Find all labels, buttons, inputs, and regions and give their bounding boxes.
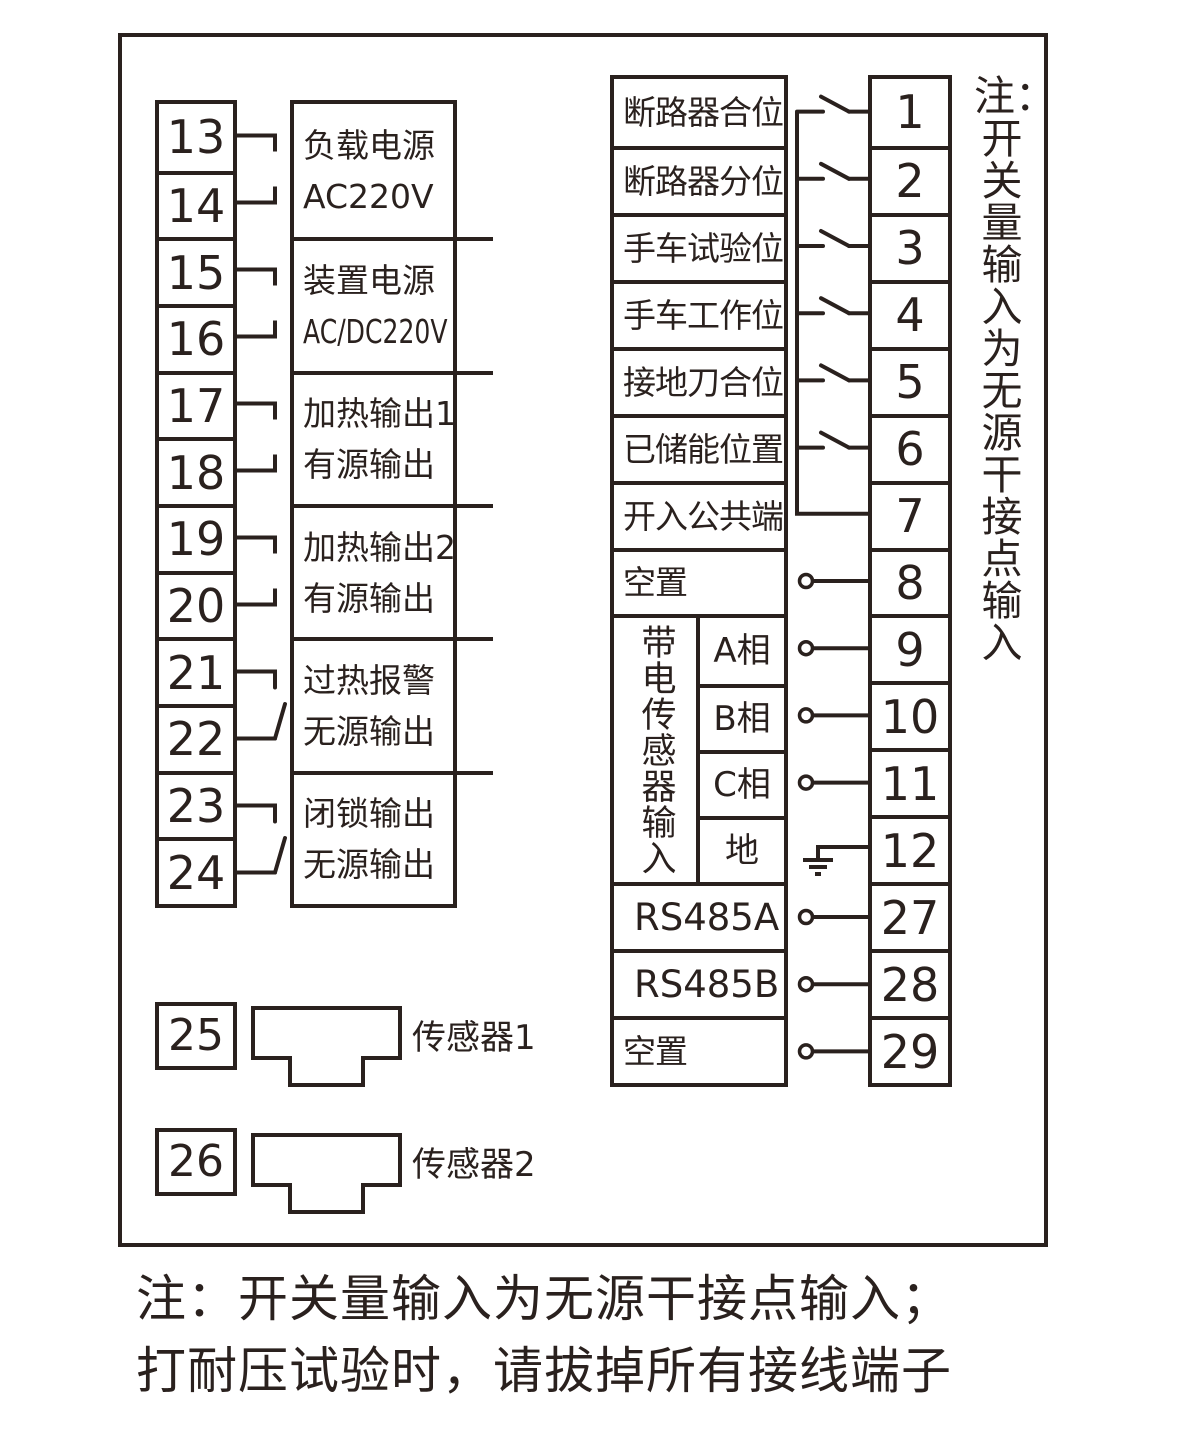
signal-breaker-open: 断路器分位 [614, 146, 784, 213]
left-terminal-22: 22 [159, 704, 233, 771]
sensor2-terminal-box: 26 [155, 1128, 237, 1196]
wiring-diagram-page: { "ink_color": "#2a211e", "background_co… [0, 0, 1180, 1432]
phase-channel-column: A相 B相 C相 地 [700, 618, 784, 882]
signal-spare-8: 空置 [614, 548, 784, 615]
output-group-label-line1: 加热输出1 [303, 397, 493, 430]
output-group-label-line2: 无源输出 [303, 848, 493, 881]
output-group-device-power: 装置电源 AC/DC220V [294, 237, 493, 370]
footer-note-line1: 注：开关量输入为无源干接点输入； [136, 1274, 952, 1324]
terminal-2: 2 [872, 146, 948, 213]
output-group-lockout: 闭锁输出 无源输出 [294, 771, 493, 904]
terminal-28: 28 [872, 949, 948, 1016]
output-group-heater-1: 加热输出1 有源输出 [294, 371, 493, 504]
output-group-label-line1: 过热报警 [303, 664, 493, 697]
channel-phase-a: A相 [700, 618, 784, 684]
terminal-12: 12 [872, 815, 948, 882]
terminal-8: 8 [872, 548, 948, 615]
output-group-label-line2: AC220V [303, 180, 493, 213]
signal-rs485b: RS485B [614, 949, 784, 1016]
sensor2-label: 传感器2 [412, 1148, 536, 1182]
signal-rs485a: RS485A [614, 882, 784, 949]
output-group-label-line2: 无源输出 [303, 715, 493, 748]
left-terminal-15: 15 [159, 237, 233, 304]
output-group-label-line1: 装置电源 [303, 264, 493, 297]
terminal-11: 11 [872, 748, 948, 815]
left-terminal-17: 17 [159, 371, 233, 438]
output-group-overheat-alarm: 过热报警 无源输出 [294, 637, 493, 770]
terminal-10: 10 [872, 681, 948, 748]
left-terminal-19: 19 [159, 504, 233, 571]
terminal-29: 29 [872, 1016, 948, 1083]
signal-trolley-work: 手车工作位 [614, 280, 784, 347]
output-group-load-power: 负载电源 AC220V [294, 104, 493, 237]
left-terminal-13: 13 [159, 104, 233, 171]
sensor1-terminal-box: 25 [155, 1002, 237, 1070]
terminal-9: 9 [872, 614, 948, 681]
channel-phase-c: C相 [700, 750, 784, 816]
live-sensor-input-group-title-cell: 带电传感器输入 [614, 618, 700, 882]
output-group-label-line1: 负载电源 [303, 129, 493, 162]
output-group-label-line2: 有源输出 [303, 448, 493, 481]
footer-note-line2: 打耐压试验时，请拔掉所有接线端子 [136, 1346, 952, 1396]
signal-input-common: 开入公共端 [614, 481, 784, 548]
channel-phase-b: B相 [700, 684, 784, 750]
terminal-1: 1 [872, 79, 948, 146]
output-group-label-line1: 闭锁输出 [303, 797, 493, 830]
signal-breaker-closed: 断路器合位 [614, 79, 784, 146]
terminal-7: 7 [872, 481, 948, 548]
live-sensor-input-group-title: 带电传感器输入 [638, 624, 673, 876]
output-group-label-line2: 有源输出 [303, 582, 493, 615]
left-terminal-24: 24 [159, 837, 233, 904]
terminal-4: 4 [872, 280, 948, 347]
output-group-label-line2: AC/DC220V [303, 315, 448, 348]
signal-earth-switch-closed: 接地刀合位 [614, 347, 784, 414]
left-output-label-column: 负载电源 AC220V 装置电源 AC/DC220V 加热输出1 有源输出 加热… [290, 100, 457, 908]
left-terminal-23: 23 [159, 771, 233, 838]
signal-trolley-test: 手车试验位 [614, 213, 784, 280]
terminal-6: 6 [872, 414, 948, 481]
terminal-27: 27 [872, 882, 948, 949]
left-terminal-21: 21 [159, 637, 233, 704]
terminal-3: 3 [872, 213, 948, 280]
channel-ground: 地 [700, 816, 784, 882]
terminal-5: 5 [872, 347, 948, 414]
right-terminal-number-column: 1 2 3 4 5 6 7 8 9 10 11 12 27 28 29 [868, 75, 952, 1087]
sensor1-label: 传感器1 [412, 1021, 536, 1055]
right-signal-label-column: 断路器合位 断路器分位 手车试验位 手车工作位 接地刀合位 已储能位置 开入公共… [610, 75, 788, 1087]
vertical-note-prefix: 注： [974, 76, 1056, 117]
signal-energy-stored: 已储能位置 [614, 414, 784, 481]
output-group-label-line1: 加热输出2 [303, 531, 493, 564]
signal-spare-29: 空置 [614, 1016, 784, 1083]
vertical-note-body: 开关量输入为无源干接点输入 [977, 117, 1018, 663]
left-terminal-14: 14 [159, 171, 233, 238]
left-terminal-16: 16 [159, 304, 233, 371]
output-group-heater-2: 加热输出2 有源输出 [294, 504, 493, 637]
live-sensor-input-group: 带电传感器输入 A相 B相 C相 地 [614, 614, 784, 882]
left-terminal-20: 20 [159, 571, 233, 638]
left-terminal-18: 18 [159, 437, 233, 504]
left-terminal-number-column: 13 14 15 16 17 18 19 20 21 22 23 24 [155, 100, 237, 908]
